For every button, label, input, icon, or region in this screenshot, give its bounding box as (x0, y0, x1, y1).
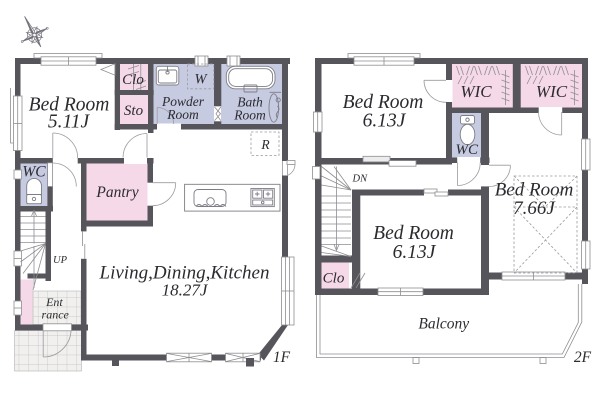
svg-text:5.11J: 5.11J (48, 112, 91, 133)
svg-text:WIC: WIC (536, 82, 568, 101)
svg-text:18.27J: 18.27J (162, 281, 209, 300)
svg-text:Room: Room (233, 108, 266, 123)
svg-text:UP: UP (53, 255, 68, 266)
svg-text:1F: 1F (273, 349, 291, 366)
svg-text:Sto: Sto (124, 103, 144, 119)
svg-text:Bed Room: Bed Room (373, 223, 454, 244)
svg-text:Pantry: Pantry (95, 184, 138, 201)
svg-text:rance: rance (42, 308, 70, 322)
svg-text:WC: WC (456, 142, 479, 158)
svg-text:Clo: Clo (122, 72, 144, 88)
svg-text:WC: WC (22, 164, 46, 181)
svg-text:WIC: WIC (460, 82, 492, 101)
svg-text:DN: DN (352, 174, 369, 185)
svg-text:R: R (260, 137, 270, 152)
svg-text:7.66J: 7.66J (513, 198, 556, 219)
svg-text:6.13J: 6.13J (393, 242, 437, 263)
svg-text:W: W (194, 72, 208, 88)
svg-text:Balcony: Balcony (418, 316, 469, 333)
svg-text:Room: Room (166, 107, 199, 122)
svg-text:6.13J: 6.13J (363, 111, 407, 132)
svg-text:2F: 2F (574, 349, 592, 366)
svg-text:Clo: Clo (323, 271, 345, 287)
